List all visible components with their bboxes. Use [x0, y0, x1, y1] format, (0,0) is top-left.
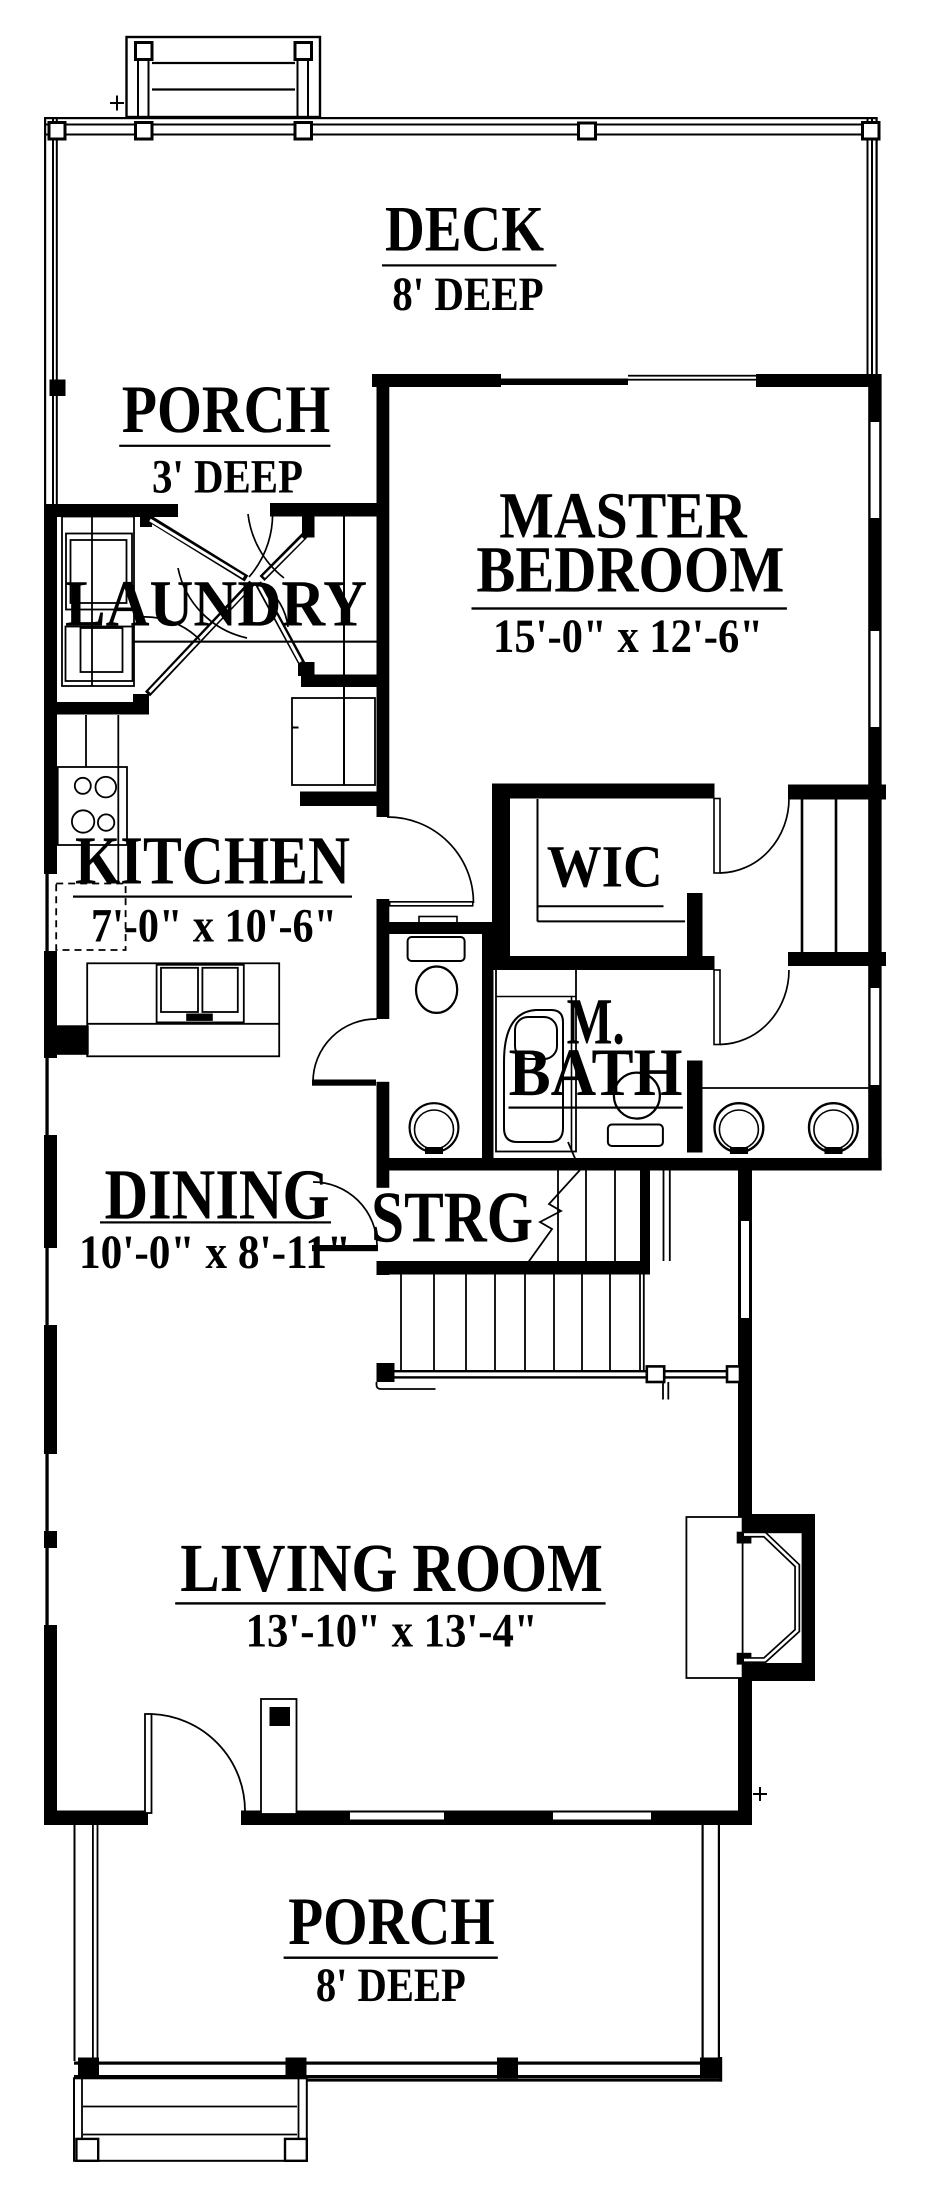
- svg-text:3' DEEP: 3' DEEP: [152, 451, 303, 504]
- svg-text:BEDROOM: BEDROOM: [476, 533, 784, 606]
- svg-text:BATH: BATH: [509, 1034, 683, 1110]
- svg-text:KITCHEN: KITCHEN: [75, 823, 350, 899]
- svg-text:7'-0" x 10'-6": 7'-0" x 10'-6": [91, 900, 337, 953]
- svg-text:10'-0" x 8'-11": 10'-0" x 8'-11": [79, 1226, 351, 1279]
- svg-text:STRG: STRG: [371, 1177, 533, 1258]
- svg-text:13'-10" x 13'-4": 13'-10" x 13'-4": [246, 1605, 538, 1658]
- svg-text:WIC: WIC: [547, 834, 663, 900]
- svg-text:15'-0" x 12'-6": 15'-0" x 12'-6": [493, 610, 763, 663]
- svg-text:DECK: DECK: [385, 193, 544, 265]
- svg-text:LAUNDRY: LAUNDRY: [65, 568, 367, 641]
- svg-text:8' DEEP: 8' DEEP: [392, 268, 543, 321]
- svg-text:PORCH: PORCH: [122, 371, 331, 447]
- svg-text:8' DEEP: 8' DEEP: [316, 1959, 466, 2012]
- svg-text:PORCH: PORCH: [288, 1883, 495, 1959]
- svg-text:LIVING ROOM: LIVING ROOM: [180, 1530, 603, 1606]
